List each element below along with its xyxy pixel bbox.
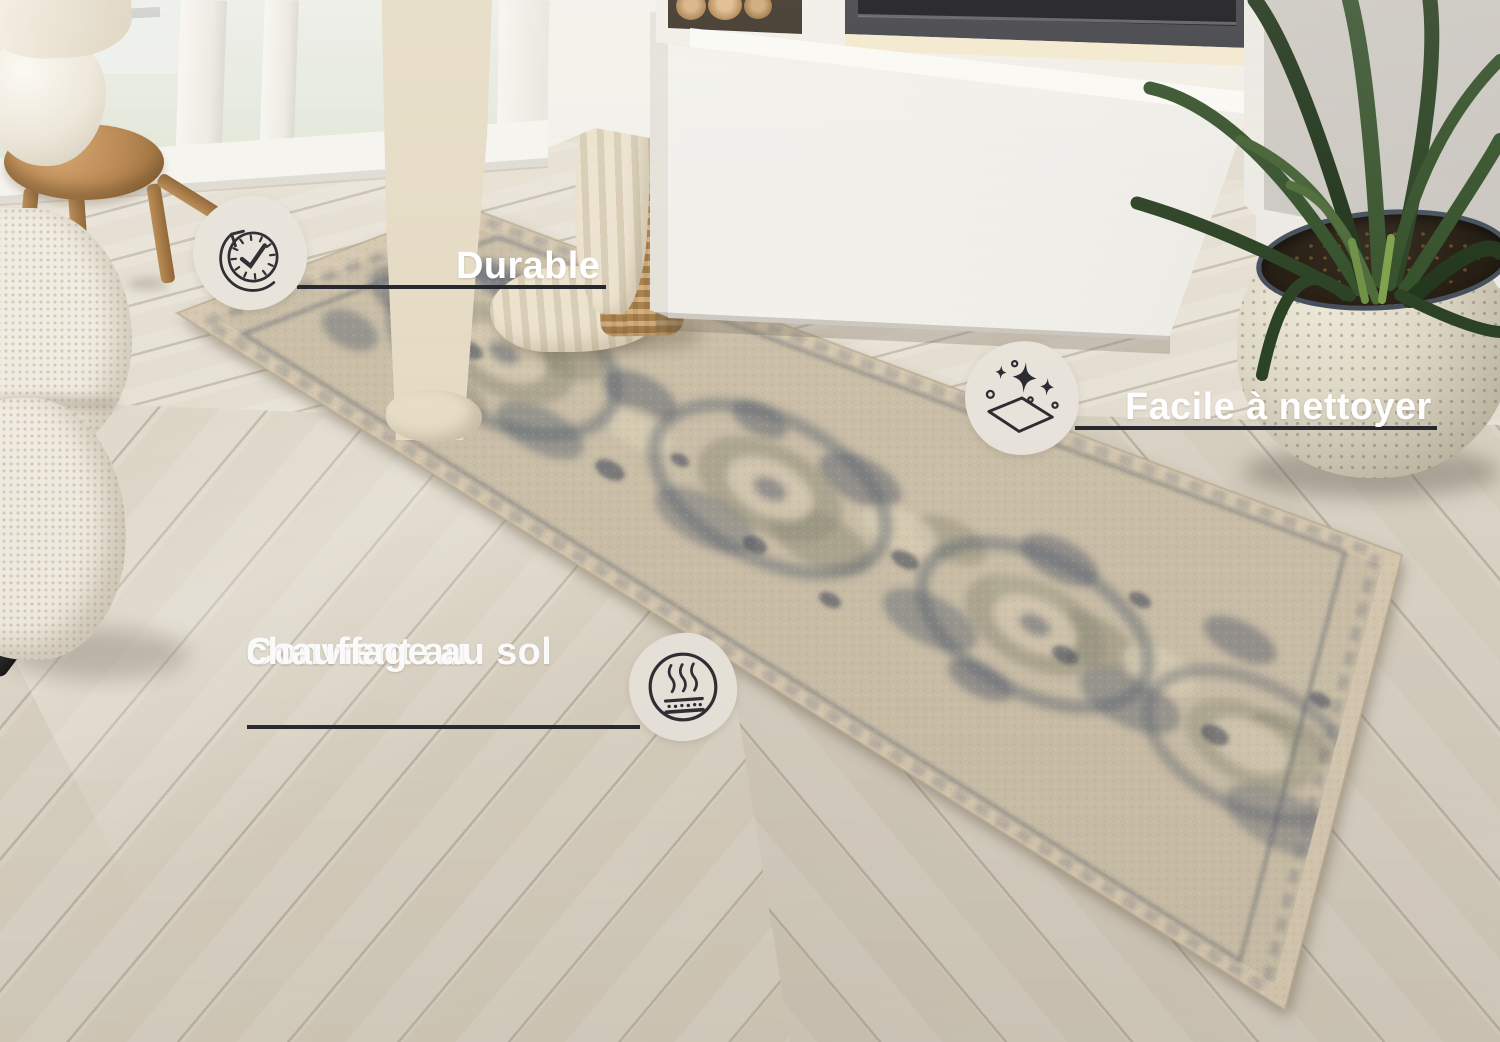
feature-label-text: Durable xyxy=(456,240,600,292)
floor-heating-icon xyxy=(640,644,725,729)
feature-label-text: Facile à nettoyer xyxy=(1125,381,1432,433)
feature-label-line2: chauffage au sol xyxy=(246,626,552,678)
sparkles-easy-clean-icon xyxy=(975,351,1068,444)
product-photo-scene: Durable Facile à nettoyer Convient au ch… xyxy=(0,0,1500,1042)
feature-underline-floor-heating xyxy=(247,725,640,729)
plant-leaves xyxy=(0,0,1500,1042)
clock-durability-icon xyxy=(203,206,298,301)
